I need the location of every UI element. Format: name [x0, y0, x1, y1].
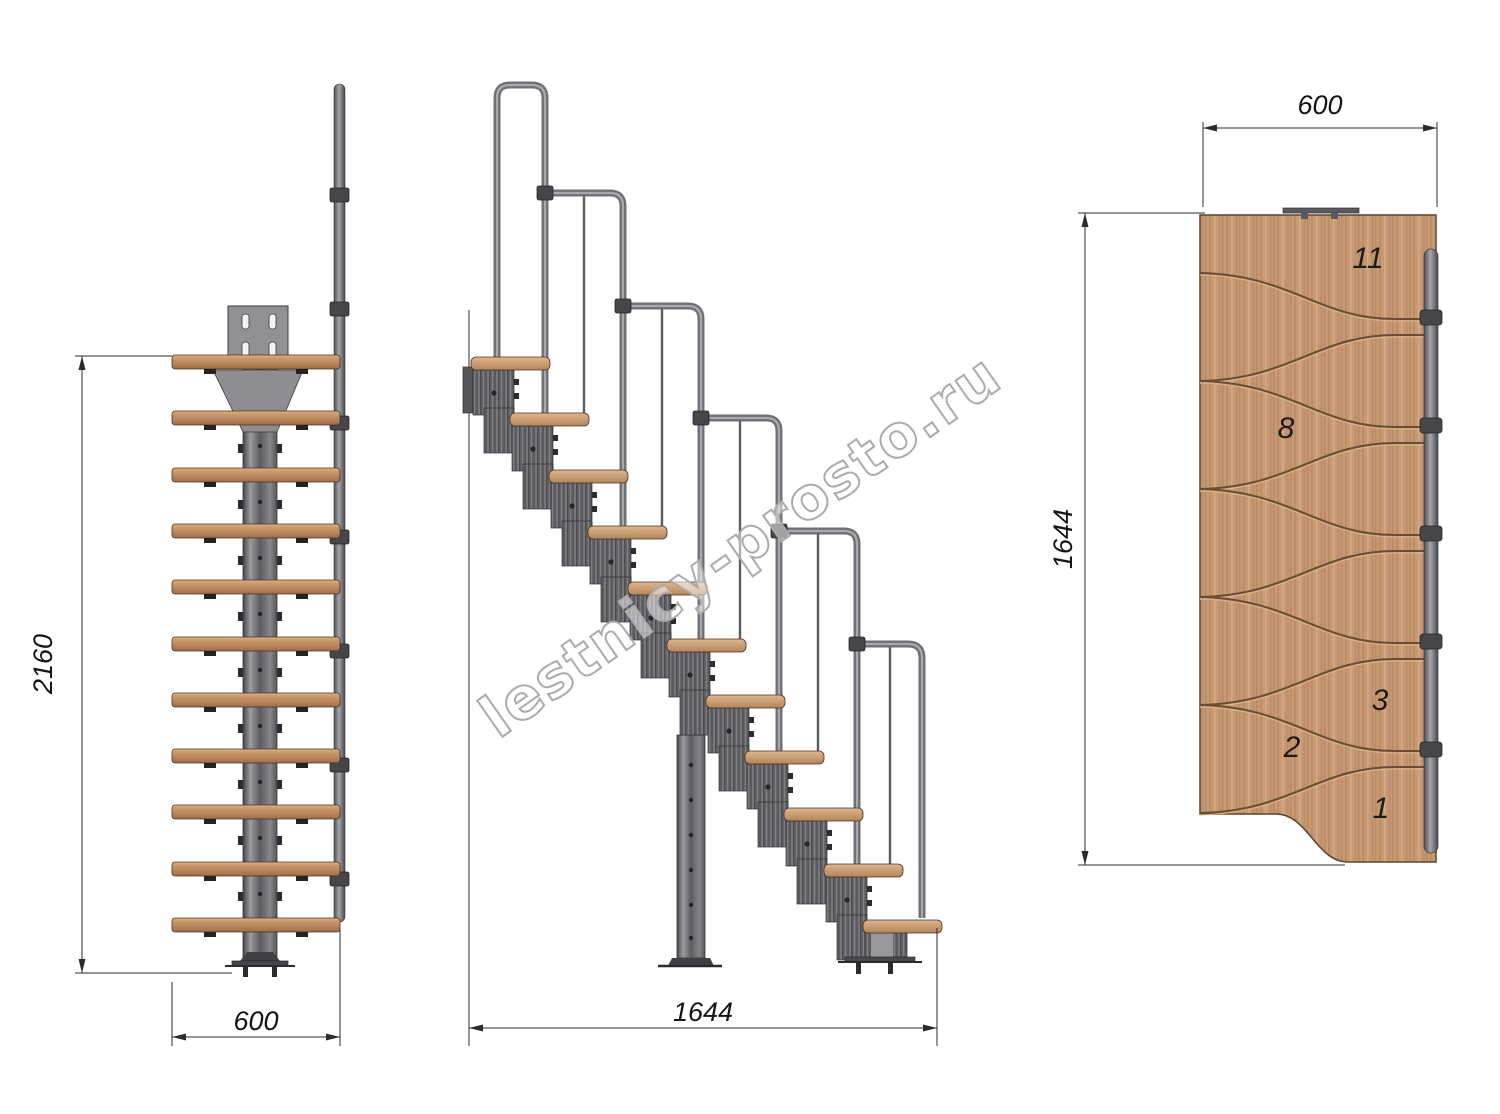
plan-width-dimension-label: 600 [1297, 90, 1342, 120]
plan-length-dimension-label: 1644 [1048, 509, 1078, 569]
wall-bracket [463, 367, 473, 413]
support-column [658, 735, 722, 966]
rail-clamp [849, 637, 865, 651]
height-dimension-label: 2160 [28, 634, 58, 695]
watermark: lestnicy-prosto.ru [468, 340, 1014, 751]
step-number-11: 11 [1352, 242, 1383, 275]
side-length-dimension-label: 1644 [673, 997, 733, 1027]
front-handrail-post [330, 84, 349, 922]
rail-clamp [1420, 526, 1442, 541]
rail-clamp [693, 411, 709, 425]
step-number-1: 1 [1373, 792, 1390, 825]
rail-clamp [1420, 310, 1442, 325]
front-base-plate [225, 952, 295, 977]
plan-width-dimension: 600 [1203, 90, 1437, 207]
rail-clamp [330, 302, 349, 316]
rail-clamp [1420, 418, 1442, 433]
staircase-drawing: 2160 600 [0, 0, 1500, 1114]
front-width-dimension-label: 600 [233, 1006, 278, 1036]
rail-clamp [1420, 742, 1442, 757]
rail-clamp [537, 186, 553, 200]
front-view: 2160 600 [28, 84, 349, 1046]
rail-clamp [330, 188, 349, 202]
drawing-canvas: 2160 600 [0, 0, 1500, 1114]
rail-clamp [1420, 634, 1442, 649]
plan-view: 11 8 3 2 1 600 [1048, 90, 1442, 865]
rail-clamp [615, 299, 631, 313]
height-dimension: 2160 [28, 356, 232, 973]
step-number-2: 2 [1283, 731, 1301, 764]
treads-panel [1200, 215, 1436, 862]
step-number-8: 8 [1278, 412, 1295, 445]
step-number-3: 3 [1372, 684, 1389, 717]
